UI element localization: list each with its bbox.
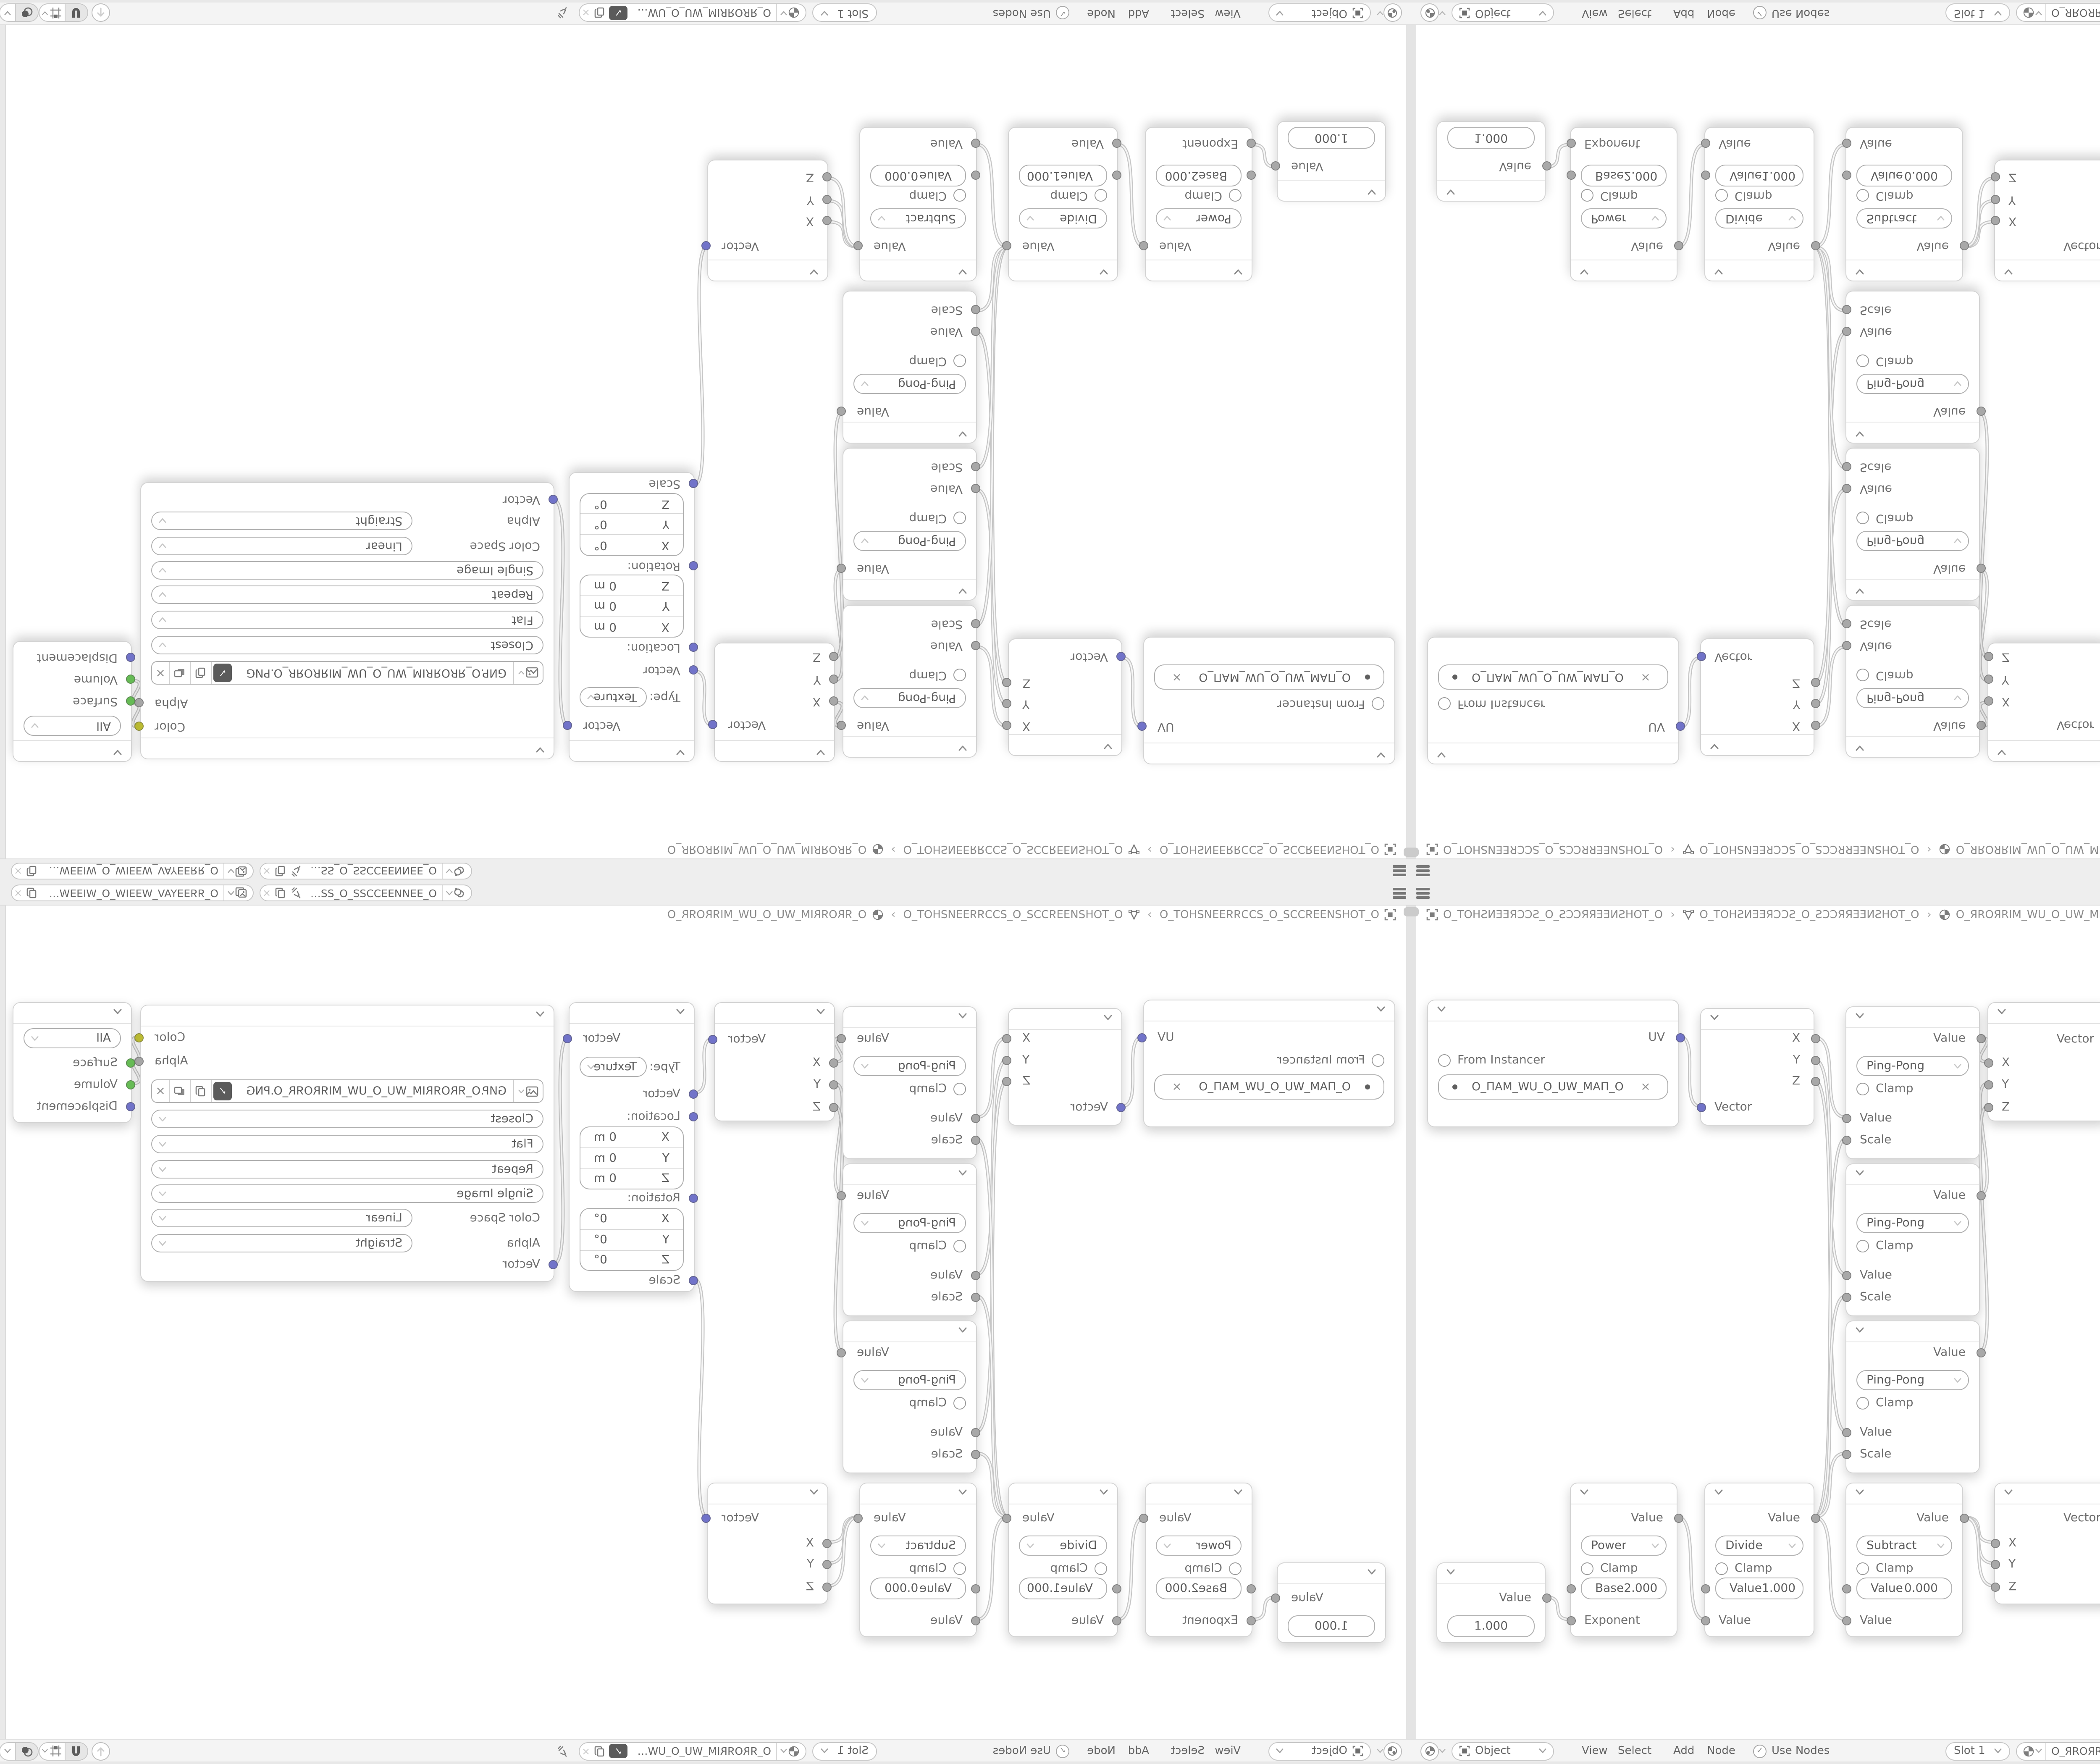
unlink-x-icon[interactable]: ×	[1168, 1080, 1185, 1094]
node-math-power[interactable]: ValuePowerClampBase2.000Exponent	[1570, 127, 1677, 281]
checkbox-circle[interactable]	[1438, 698, 1451, 710]
overlap-pill[interactable]	[0, 4, 39, 22]
output-socket[interactable]	[1976, 1191, 1985, 1200]
checkbox-clamp[interactable]: Clamp	[1856, 1395, 1914, 1410]
node-combine-xyz-bottom[interactable]: VectorXYZ	[1994, 160, 2100, 281]
input-socket[interactable]	[1984, 1058, 1993, 1067]
value-field-value[interactable]: Value0.000	[1856, 165, 1952, 186]
vector-field-group[interactable]: X0 mY0 mZ0 m	[580, 575, 684, 638]
output-socket[interactable]	[1003, 1076, 1012, 1086]
slot-selector[interactable]: Slot 1	[1945, 1741, 2010, 1761]
chevron-down-icon[interactable]	[0, 1743, 15, 1759]
collapse-chevron-icon[interactable]	[958, 1489, 968, 1495]
checkbox-circle[interactable]	[1856, 669, 1869, 682]
output-socket[interactable]	[1811, 241, 1820, 251]
unlink-x-icon[interactable]: ×	[152, 1080, 170, 1102]
dropdown-ping-pong[interactable]: Ping-Pong	[853, 1370, 966, 1390]
collapse-chevron-icon[interactable]	[1709, 743, 1719, 749]
output-socket[interactable]	[854, 1513, 863, 1522]
node-math-ping-pong-1[interactable]: ValuePing-PongClampValueScale	[1845, 1006, 1980, 1159]
vector-field-row[interactable]: Z0°	[580, 1249, 683, 1270]
dropdown-power[interactable]: Power	[1581, 1536, 1667, 1556]
node-header[interactable]	[843, 422, 976, 443]
dropdown-subtract[interactable]: Subtract	[870, 1536, 966, 1556]
node-separate-xyz[interactable]: XYZVector	[1700, 1008, 1814, 1126]
copy-icon[interactable]	[592, 5, 607, 21]
node-value[interactable]: Value1.000	[1436, 121, 1546, 202]
output-socket[interactable]	[1003, 1034, 1012, 1043]
menu-node[interactable]: Node	[1087, 1741, 1116, 1761]
vector-field-row[interactable]: X0 m	[580, 1127, 683, 1147]
node-header[interactable]	[570, 1003, 694, 1024]
vector-field-row[interactable]: Z0 m	[580, 1168, 683, 1189]
node-header[interactable]	[1146, 1483, 1252, 1504]
menu-add[interactable]: Add	[1673, 1741, 1694, 1761]
menu-select[interactable]: Select	[1171, 3, 1205, 23]
checkbox-from-instancer[interactable]: From Instancer	[1277, 696, 1384, 711]
dropdown-divide[interactable]: Divide	[1019, 1536, 1107, 1556]
use-nodes-toggle[interactable]: ✓Use Nodes	[993, 1741, 1069, 1761]
node-header[interactable]	[1846, 579, 1979, 600]
collapse-chevron-icon[interactable]	[1099, 269, 1109, 275]
dropdown-ping-pong[interactable]: Ping-Pong	[1856, 688, 1969, 708]
checkbox-circle[interactable]	[953, 1082, 966, 1095]
editor-type-button[interactable]	[1377, 3, 1402, 23]
output-socket[interactable]	[837, 407, 846, 416]
unlink-x-icon[interactable]: ×	[152, 662, 170, 684]
node-math-ping-pong-1[interactable]: ValuePing-PongClampValueScale	[843, 1006, 977, 1159]
slot-selector[interactable]: Slot 1	[1945, 3, 2010, 23]
parent-node-tree-button[interactable]	[92, 3, 110, 23]
checkbox-clamp[interactable]: Clamp	[1050, 1561, 1107, 1576]
value-field-base[interactable]: Base2.000	[1156, 1578, 1242, 1599]
editor-type-button[interactable]	[1420, 3, 1446, 23]
auto-offset-controls[interactable]	[0, 3, 39, 23]
uv-map-select[interactable]: O_ПAM_WU_O_UW_MAП_O×	[1438, 1074, 1668, 1100]
use-nodes-toggle[interactable]: ✓Use Nodes	[993, 3, 1069, 23]
node-header[interactable]	[1701, 734, 1814, 755]
checkbox-clamp[interactable]: Clamp	[909, 1081, 966, 1096]
breadcrumb-item[interactable]: O_TOHƧИƎƎЯƆƆƧ_O_ƧƆƆЯЯƎƎИƧHOT_O	[1683, 843, 1919, 856]
dropdown-ping-pong[interactable]: Ping-Pong	[1856, 1056, 1969, 1076]
vector-field-row[interactable]: X0°	[580, 535, 683, 555]
magnet-icon[interactable]	[65, 1743, 87, 1759]
value-field[interactable]: 1.000	[1288, 1615, 1375, 1637]
dropdown-repeat[interactable]: Repeat	[151, 585, 543, 604]
checkbox-circle[interactable]	[1095, 1562, 1107, 1575]
new-image-button[interactable]	[191, 662, 212, 684]
vector-field-row[interactable]: Z0 m	[580, 575, 683, 596]
sidebar-collapse-tab[interactable]	[1411, 907, 1419, 916]
dropdown-ping-pong[interactable]: Ping-Pong	[853, 1056, 966, 1076]
node-header[interactable]	[1009, 734, 1121, 755]
shader-editor-icon[interactable]	[1420, 4, 1439, 22]
collapse-chevron-icon[interactable]	[1103, 1015, 1113, 1021]
node-uv-map[interactable]: UVFrom InstancerO_ПAM_WU_O_UW_MAП_O×	[1427, 637, 1679, 764]
menu-select[interactable]: Select	[1618, 1741, 1651, 1761]
view-layer-selector[interactable]: O_ЯЯƎƎYAV_WƎƎIW_O_WIƎƎW_VAYƎƎЯ_O×	[11, 885, 254, 901]
dropdown-ping-pong[interactable]: Ping-Pong	[853, 531, 966, 551]
copy-icon[interactable]	[24, 885, 39, 900]
menu-burger-icon[interactable]	[1416, 865, 1430, 876]
vector-field-row[interactable]: X0 m	[580, 617, 683, 637]
node-header[interactable]	[13, 740, 131, 761]
dropdown-flat[interactable]: Flat	[151, 611, 543, 629]
fake-user-shield-button[interactable]: ✓	[609, 1744, 627, 1758]
output-socket[interactable]	[1811, 699, 1820, 709]
dropdown-ping-pong[interactable]: Ping-Pong	[853, 688, 966, 708]
overlap-pill[interactable]	[0, 1742, 39, 1760]
circles-icon[interactable]	[15, 5, 38, 21]
checkbox-circle[interactable]	[1856, 1082, 1869, 1095]
dropdown-divide[interactable]: Divide	[1019, 208, 1107, 228]
dropdown-ping-pong[interactable]: Ping-Pong	[853, 374, 966, 394]
checkbox-clamp[interactable]: Clamp	[1856, 668, 1914, 683]
vector-field-row[interactable]: Y0°	[580, 514, 683, 535]
menu-add[interactable]: Add	[1128, 3, 1149, 23]
sidebar-collapse-tab[interactable]	[1411, 848, 1419, 857]
menu-view[interactable]: View	[1215, 1741, 1241, 1761]
node-header[interactable]	[1846, 422, 1979, 443]
node-header[interactable]	[1846, 1483, 1962, 1504]
collapse-chevron-icon[interactable]	[809, 1489, 819, 1495]
image-datablock-row[interactable]: GИP.O_ЯROЯRIM_WU_O_UW_MIЯROЯR_O.PNG✓×	[151, 1079, 543, 1103]
value-field-value[interactable]: Value0.000	[870, 1578, 966, 1599]
node-math-power[interactable]: ValuePowerClampBase2.000Exponent	[1145, 127, 1252, 281]
collapse-chevron-icon[interactable]	[1436, 752, 1446, 758]
breadcrumb-item[interactable]: O_TOHƧИƎƎЯƆƆƧ_O_ƧƆƆЯЯƎƎИƧHOT_O	[1160, 843, 1396, 856]
image-browse-button[interactable]	[513, 662, 543, 684]
unlink-x-icon[interactable]: ×	[580, 1745, 592, 1757]
pin-button[interactable]	[556, 1741, 567, 1761]
input-socket[interactable]	[1696, 1102, 1706, 1112]
node-header[interactable]	[1705, 1483, 1814, 1504]
collapse-chevron-icon[interactable]	[535, 747, 545, 753]
vector-field-row[interactable]: X0°	[580, 1209, 683, 1229]
output-socket[interactable]	[709, 1034, 718, 1044]
output-socket[interactable]	[1271, 1593, 1281, 1602]
input-socket[interactable]	[1842, 1584, 1851, 1593]
dropdown-ping-pong[interactable]: Ping-Pong	[1856, 1370, 1969, 1390]
collapse-chevron-icon[interactable]	[113, 1009, 123, 1015]
pin-icon[interactable]	[288, 885, 303, 900]
checkbox-circle[interactable]	[1856, 1239, 1869, 1252]
menu-select[interactable]: Select	[1171, 1741, 1205, 1761]
output-socket[interactable]	[135, 698, 144, 708]
output-socket[interactable]	[1139, 241, 1149, 251]
checkbox-from-instancer[interactable]: From Instancer	[1438, 1053, 1545, 1068]
breadcrumb-item[interactable]: O_TOHƧИƎƎЯƆƆƧ_O_ƧƆƆЯЯƎƎИƧHOT_O	[903, 843, 1139, 856]
node-uv-map[interactable]: UVFrom InstancerO_ПAM_WU_O_UW_MAП_O×	[1143, 637, 1395, 764]
material-pill[interactable]: O_ЯROЯRIM_WU_O_UW_MIЯROЯR_O✓×	[579, 4, 806, 22]
material-selector[interactable]: O_ЯROЯRIM_WU_O_UW_MIЯROЯR_O✓×	[579, 1741, 806, 1761]
collapse-chevron-icon[interactable]	[958, 1327, 968, 1333]
input-socket[interactable]	[1701, 1616, 1710, 1625]
image-datablock-row[interactable]: GИP.O_ЯROЯRIM_WU_O_UW_MIЯROЯR_O.PNG✓×	[151, 661, 543, 685]
node-header[interactable]	[1278, 180, 1385, 201]
unlink-x-icon[interactable]: ×	[1637, 1080, 1654, 1094]
checkbox-clamp[interactable]: Clamp	[1184, 188, 1242, 203]
node-uv-map[interactable]: UVFrom InstancerO_ПAM_WU_O_UW_MAП_O×	[1143, 1000, 1395, 1127]
output-socket[interactable]	[1542, 162, 1551, 171]
value-field-value[interactable]: Value1.000	[1715, 165, 1803, 186]
node-math-subtract[interactable]: ValueSubtractClampValue0.000Value	[1845, 1483, 1963, 1637]
node-header[interactable]	[1846, 1007, 1979, 1028]
collapse-chevron-icon[interactable]	[1855, 431, 1865, 437]
node-header[interactable]	[843, 579, 976, 600]
output-socket[interactable]	[1675, 1033, 1685, 1042]
pack-image-button[interactable]	[170, 1080, 191, 1102]
input-socket[interactable]	[1990, 1538, 2000, 1548]
collapse-chevron-icon[interactable]	[1855, 1327, 1865, 1333]
collapse-chevron-icon[interactable]	[1855, 1170, 1865, 1176]
scene-selector[interactable]: O_ƎƎИИƎƎƆƆƧƧ_O_ƧƧƆƆƎƎИ...×	[260, 863, 472, 879]
output-socket[interactable]	[837, 721, 846, 730]
output-socket[interactable]	[1542, 1593, 1551, 1602]
node-header[interactable]	[1995, 260, 2100, 281]
collapse-chevron-icon[interactable]	[1376, 752, 1386, 758]
input-socket[interactable]	[1842, 1616, 1851, 1625]
node-combine-xyz-bottom[interactable]: VectorXYZ	[707, 1483, 828, 1604]
collapse-chevron-icon[interactable]	[1855, 1013, 1865, 1019]
collapse-chevron-icon[interactable]	[1367, 189, 1377, 195]
value-field-value[interactable]: Value1.000	[1019, 1578, 1107, 1599]
scene-selector[interactable]: O_ƎƎИИƎƎƆƆƧƧ_O_ƧƧƆƆƎƎИ...×	[260, 885, 472, 901]
material-selector[interactable]: O_ЯROЯRIM_WU_O_UW_MIЯROЯR_O✓×	[2016, 3, 2100, 23]
collapse-chevron-icon[interactable]	[958, 1170, 968, 1176]
output-socket[interactable]	[1003, 241, 1012, 251]
collapse-chevron-icon[interactable]	[958, 1013, 968, 1019]
dropdown-texture[interactable]: Texture	[580, 687, 647, 707]
output-socket[interactable]	[1003, 699, 1012, 709]
output-socket[interactable]	[1675, 722, 1685, 731]
node-header[interactable]	[1144, 743, 1394, 764]
node-value[interactable]: Value1.000	[1277, 1562, 1386, 1643]
pin-button[interactable]	[556, 3, 567, 23]
editor-type-button[interactable]	[1377, 1741, 1402, 1761]
input-socket[interactable]	[1842, 1135, 1851, 1144]
value-field-base[interactable]: Base2.000	[1156, 165, 1242, 186]
node-separate-xyz[interactable]: XYZVector	[1700, 638, 1814, 756]
node-header[interactable]	[1009, 1009, 1121, 1030]
output-socket[interactable]	[1138, 1033, 1147, 1042]
node-math-divide[interactable]: ValueDivideClampValue1.000Value	[1704, 1483, 1814, 1637]
checkbox-circle[interactable]	[1581, 1562, 1593, 1575]
node-header[interactable]	[141, 1005, 554, 1026]
node-header[interactable]	[1428, 743, 1678, 764]
collapse-chevron-icon[interactable]	[1233, 1489, 1243, 1495]
vector-field-row[interactable]: Z0°	[580, 493, 683, 514]
use-nodes-toggle[interactable]: ✓Use Nodes	[1753, 3, 1830, 23]
node-combine-xyz-bottom[interactable]: VectorXYZ	[707, 160, 828, 281]
checkbox-clamp[interactable]: Clamp	[1184, 1561, 1242, 1576]
collapse-chevron-icon[interactable]	[809, 269, 819, 275]
dropdown-ping-pong[interactable]: Ping-Pong	[1856, 531, 1969, 551]
collapse-chevron-icon[interactable]	[1367, 1569, 1377, 1575]
checkbox-circle[interactable]	[1856, 355, 1869, 367]
checkbox-circle[interactable]	[1438, 1054, 1451, 1066]
view-layer-selector[interactable]: O_ЯЯƎƎYAV_WƎƎIW_O_WIƎƎW_VAYƎƎЯ_O×	[11, 863, 254, 879]
checkbox-from-instancer[interactable]: From Instancer	[1277, 1053, 1384, 1068]
uv-map-select[interactable]: O_ПAM_WU_O_UW_MAП_O×	[1438, 664, 1668, 690]
mode-selector[interactable]: Object	[1452, 3, 1554, 23]
output-socket[interactable]	[837, 564, 846, 573]
node-mapping[interactable]: VectorType:TextureVectorLocation:X0 mY0 …	[569, 472, 695, 762]
snap-pill[interactable]	[39, 1742, 88, 1760]
unlink-x-icon[interactable]: ×	[580, 7, 592, 19]
input-socket[interactable]	[1842, 1292, 1851, 1302]
node-image-texture[interactable]: ColorAlphaGИP.O_ЯROЯRIM_WU_O_UW_MIЯROЯR_…	[140, 1005, 554, 1282]
node-math-ping-pong-2[interactable]: ValuePing-PongClampValueScale	[843, 448, 977, 601]
checkbox-circle[interactable]	[1372, 1054, 1384, 1066]
output-socket[interactable]	[709, 720, 718, 730]
dropdown-all[interactable]: All	[24, 716, 121, 736]
checkbox-clamp[interactable]: Clamp	[909, 1238, 966, 1253]
sidebar-collapse-tab[interactable]	[1404, 848, 1411, 857]
dropdown-flat[interactable]: Flat	[151, 1135, 543, 1153]
copy-icon[interactable]	[273, 864, 288, 879]
node-header[interactable]	[13, 1003, 131, 1024]
value-field-base[interactable]: Base2.000	[1581, 1578, 1667, 1599]
mode-selector[interactable]: Object	[1452, 1741, 1554, 1761]
node-header[interactable]	[1705, 260, 1814, 281]
breadcrumb-item[interactable]: O_TOHƧИƎƎЯƆƆƧ_O_ƧƆƆЯЯƎƎИƧHOT_O	[903, 908, 1139, 921]
vector-field-group[interactable]: X0°Y0°Z0°	[580, 1208, 684, 1271]
menu-burger-icon[interactable]	[1393, 865, 1406, 876]
editor-type-button[interactable]	[1420, 1741, 1446, 1761]
checkbox-clamp[interactable]: Clamp	[909, 1561, 966, 1576]
collapse-chevron-icon[interactable]	[816, 749, 826, 755]
node-math-ping-pong-3[interactable]: ValuePing-PongClampValueScale	[843, 291, 977, 444]
menu-burger-icon[interactable]	[1393, 888, 1406, 899]
node-combine-xyz-top[interactable]: VectorXYZ	[714, 643, 835, 762]
mode-pill[interactable]: Object	[1268, 1742, 1371, 1760]
menu-node[interactable]: Node	[1087, 3, 1116, 23]
input-socket[interactable]	[1990, 1559, 2000, 1569]
menu-add[interactable]: Add	[1128, 1741, 1149, 1761]
node-header[interactable]	[1144, 1000, 1394, 1021]
value-field[interactable]: 1.000	[1447, 1615, 1535, 1637]
dropdown-subtract[interactable]: Subtract	[1856, 1536, 1952, 1556]
dropdown-ping-pong[interactable]: Ping-Pong	[853, 1213, 966, 1233]
checkbox-circle[interactable]	[1856, 189, 1869, 202]
snapping-controls[interactable]	[39, 1741, 88, 1761]
output-socket[interactable]	[837, 1191, 846, 1200]
value-field[interactable]: 1.000	[1447, 127, 1535, 149]
pin-icon[interactable]	[288, 864, 303, 879]
collapse-chevron-icon[interactable]	[1103, 743, 1113, 749]
input-socket[interactable]	[1984, 1080, 1993, 1089]
copy-icon[interactable]	[592, 1743, 607, 1759]
output-socket[interactable]	[1003, 1513, 1012, 1522]
dropdown-texture[interactable]: Texture	[580, 1057, 647, 1077]
input-socket[interactable]	[1842, 1270, 1851, 1280]
output-socket[interactable]	[1674, 1513, 1683, 1522]
dropdown-divide[interactable]: Divide	[1715, 1536, 1803, 1556]
output-socket[interactable]	[1674, 241, 1683, 251]
node-header[interactable]	[1009, 260, 1117, 281]
node-header[interactable]	[708, 260, 827, 281]
node-header[interactable]	[1701, 1009, 1814, 1030]
auto-offset-controls[interactable]	[0, 1741, 39, 1761]
mode-pill[interactable]: Object	[1268, 4, 1371, 22]
output-socket[interactable]	[1976, 1034, 1985, 1043]
node-header[interactable]	[1571, 260, 1677, 281]
collapse-chevron-icon[interactable]	[1855, 745, 1865, 751]
node-math-power[interactable]: ValuePowerClampBase2.000Exponent	[1145, 1483, 1252, 1637]
input-socket[interactable]	[1984, 1102, 1993, 1112]
output-socket[interactable]	[1811, 1055, 1820, 1065]
material-selector[interactable]: O_ЯROЯRIM_WU_O_UW_MIЯROЯR_O✓×	[579, 3, 806, 23]
output-socket[interactable]	[135, 722, 144, 731]
output-socket[interactable]	[1959, 241, 1969, 251]
copy-icon[interactable]	[24, 864, 39, 879]
mode-pill[interactable]: Object	[1452, 4, 1554, 22]
node-uv-map[interactable]: UVFrom InstancerO_ПAM_WU_O_UW_MAП_O×	[1427, 1000, 1679, 1127]
input-socket[interactable]	[1566, 1616, 1575, 1625]
sidebar-collapse-tab[interactable]	[1404, 907, 1411, 916]
pack-image-button[interactable]	[170, 662, 191, 684]
fake-user-shield-button[interactable]: ✓	[609, 6, 627, 20]
checkbox-circle[interactable]	[953, 669, 966, 682]
input-socket[interactable]	[1701, 1584, 1710, 1593]
slot-selector[interactable]: Slot 1	[812, 3, 877, 23]
value-field[interactable]: 1.000	[1288, 127, 1375, 149]
collapse-chevron-icon[interactable]	[1446, 189, 1456, 195]
collapse-chevron-icon[interactable]	[113, 749, 123, 755]
uv-map-select[interactable]: O_ПAM_WU_O_UW_MAП_O×	[1154, 664, 1384, 690]
node-math-ping-pong-1[interactable]: ValuePing-PongClampValueScale	[843, 605, 977, 758]
output-socket[interactable]	[837, 1348, 846, 1357]
checkbox-clamp[interactable]: Clamp	[1715, 1561, 1772, 1576]
use-nodes-toggle[interactable]: ✓Use Nodes	[1753, 1741, 1830, 1761]
node-header[interactable]	[715, 1003, 834, 1024]
checkbox-circle[interactable]	[953, 189, 966, 202]
node-header[interactable]	[1437, 1563, 1545, 1584]
output-socket[interactable]	[563, 721, 572, 730]
node-header[interactable]	[843, 1164, 976, 1185]
node-math-divide[interactable]: ValueDivideClampValue1.000Value	[1008, 127, 1118, 281]
node-header[interactable]	[843, 1321, 976, 1342]
node-combine-xyz-top[interactable]: VectorXYZ	[714, 1002, 835, 1121]
node-material-output[interactable]: AllSurfaceVolumeDisplacement	[13, 1002, 132, 1123]
checkbox-clamp[interactable]: Clamp	[909, 1395, 966, 1410]
chevron-down-icon[interactable]	[0, 5, 15, 21]
checkbox-circle[interactable]	[953, 355, 966, 367]
menu-burger-icon[interactable]	[1416, 888, 1430, 899]
output-socket[interactable]	[1811, 721, 1820, 730]
input-socket[interactable]	[1566, 1584, 1575, 1593]
uv-map-select[interactable]: O_ПAM_WU_O_UW_MAП_O×	[1154, 1074, 1384, 1100]
checkbox-clamp[interactable]: Clamp	[909, 354, 966, 369]
collapse-chevron-icon[interactable]	[958, 269, 968, 275]
node-math-subtract[interactable]: ValueSubtractClampValue0.000Value	[859, 1483, 977, 1637]
node-header[interactable]	[715, 740, 834, 761]
mode-selector[interactable]: Object	[1268, 3, 1371, 23]
output-socket[interactable]	[563, 1034, 572, 1043]
checkbox-clamp[interactable]: Clamp	[1581, 188, 1638, 203]
collapse-chevron-icon[interactable]	[1446, 1569, 1456, 1575]
breadcrumb-item[interactable]: O_TOHƧИƎƎЯƆƆƧ_O_ƧƆƆЯЯƎƎИƧHOT_O	[1160, 908, 1396, 921]
checkbox-circle[interactable]	[1095, 189, 1107, 202]
copy-icon[interactable]	[273, 885, 288, 900]
node-combine-xyz-top[interactable]: VectorXYZ	[1987, 1002, 2100, 1121]
menu-add[interactable]: Add	[1673, 3, 1694, 23]
checkbox-circle[interactable]	[1715, 1562, 1728, 1575]
dropdown-power[interactable]: Power	[1156, 1536, 1242, 1556]
dropdown-straight[interactable]: Straight	[151, 512, 412, 530]
breadcrumb-item[interactable]: O_TOHƧИƎƎЯƆƆƧ_O_ƧƆƆЯЯƎƎИƧHOT_O	[1426, 908, 1663, 921]
